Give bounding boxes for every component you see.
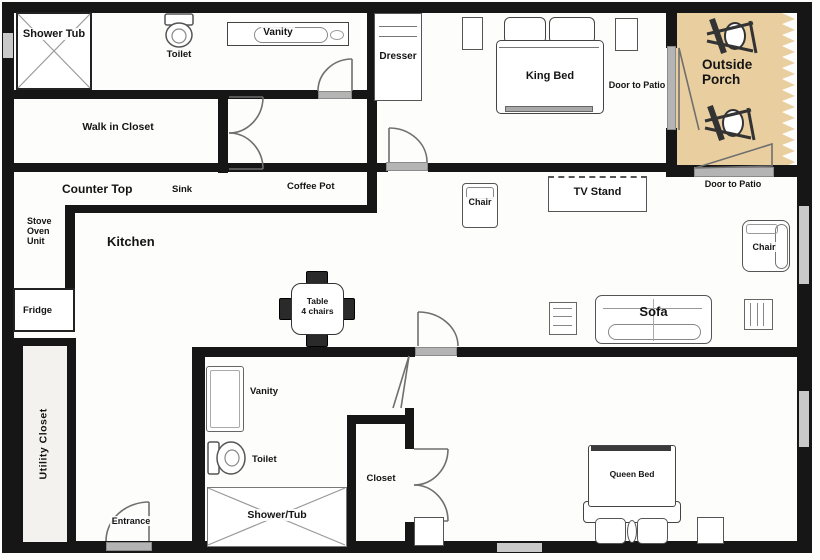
kitchen-label: Kitchen — [107, 235, 187, 250]
queen-bed-pillow — [637, 518, 668, 544]
toilet-icon — [207, 439, 247, 479]
queen-bed-bolster — [627, 520, 637, 543]
door-to-patio-label: Door to Patio — [600, 80, 674, 90]
nightstand — [414, 517, 444, 546]
door-to-patio-label: Door to Patio — [690, 179, 776, 189]
stove-oven-unit-label: Stove Oven Unit — [27, 216, 65, 246]
wall — [192, 347, 415, 357]
tv-stand-label: TV Stand — [548, 186, 647, 198]
armchair-label: Chair — [460, 197, 500, 207]
window — [799, 391, 809, 447]
wall — [65, 205, 75, 293]
utility-closet-label: Utility Closet — [14, 338, 76, 550]
closet-label: Closet — [356, 474, 406, 485]
vanity-cabinet — [206, 366, 244, 432]
dresser-label: Dresser — [372, 51, 424, 62]
bedroom-door-swing-icon — [386, 126, 428, 164]
king-bed-label: King Bed — [508, 70, 592, 82]
wall — [405, 522, 414, 548]
wall — [347, 415, 413, 424]
vanity-label: Vanity — [248, 27, 308, 38]
side-table — [744, 299, 773, 330]
wall — [428, 163, 668, 172]
wall — [347, 423, 356, 548]
bedroom2-door-swing-icon — [415, 310, 459, 348]
wall — [2, 2, 812, 13]
dining-table-label: Table4 chairs — [291, 297, 344, 316]
shower-tub-label: Shower/Tub — [207, 510, 347, 522]
outside-porch-label: Outside Porch — [702, 58, 780, 88]
bath2-door-leaf-icon — [388, 353, 414, 411]
queen-bed-label: Queen Bed — [588, 470, 676, 480]
sink-label: Sink — [172, 185, 212, 196]
wall — [2, 2, 14, 553]
walk-in-closet-label: Walk in Closet — [58, 122, 178, 134]
shower-tub — [16, 12, 92, 90]
wall — [457, 347, 802, 357]
window — [497, 543, 542, 552]
entrance-sill — [106, 542, 152, 551]
wall — [192, 350, 205, 548]
toilet-label: Toilet — [156, 50, 202, 61]
sofa-label: Sofa — [595, 305, 712, 320]
entrance-label: Entrance — [104, 516, 158, 526]
queen-bed-pillow — [595, 518, 626, 544]
fridge-label: Fridge — [23, 306, 71, 317]
vanity-label: Vanity — [250, 387, 300, 398]
walkin-closet-double-door-icon — [227, 94, 265, 172]
nightstand — [697, 517, 724, 544]
door-sill — [415, 347, 457, 356]
toilet-label: Toilet — [252, 455, 302, 466]
wall — [12, 90, 318, 99]
toilet-icon — [160, 13, 198, 49]
porch-chair-icon — [697, 103, 759, 145]
coffee-pot-label: Coffee Pot — [287, 182, 351, 193]
wall — [65, 205, 377, 213]
window — [799, 206, 809, 284]
closet-french-doors-icon — [412, 446, 450, 524]
wall — [12, 163, 388, 172]
dining-chair — [306, 334, 328, 347]
nightstand — [462, 17, 483, 50]
wall — [666, 2, 677, 48]
floor-plan: Shower Tub Toilet Vanity Walk in Closet … — [0, 0, 820, 560]
counter-top-label: Counter Top — [62, 183, 162, 196]
porch-chair-icon — [699, 16, 761, 58]
shower-tub-label: Shower Tub — [20, 28, 88, 40]
nightstand — [615, 18, 638, 51]
window — [3, 33, 13, 58]
armchair-label: Chair — [740, 242, 788, 252]
porch-screen-zigzag-icon — [779, 13, 799, 168]
side-table — [549, 302, 577, 335]
bathroom-door-swing-icon — [316, 58, 354, 94]
